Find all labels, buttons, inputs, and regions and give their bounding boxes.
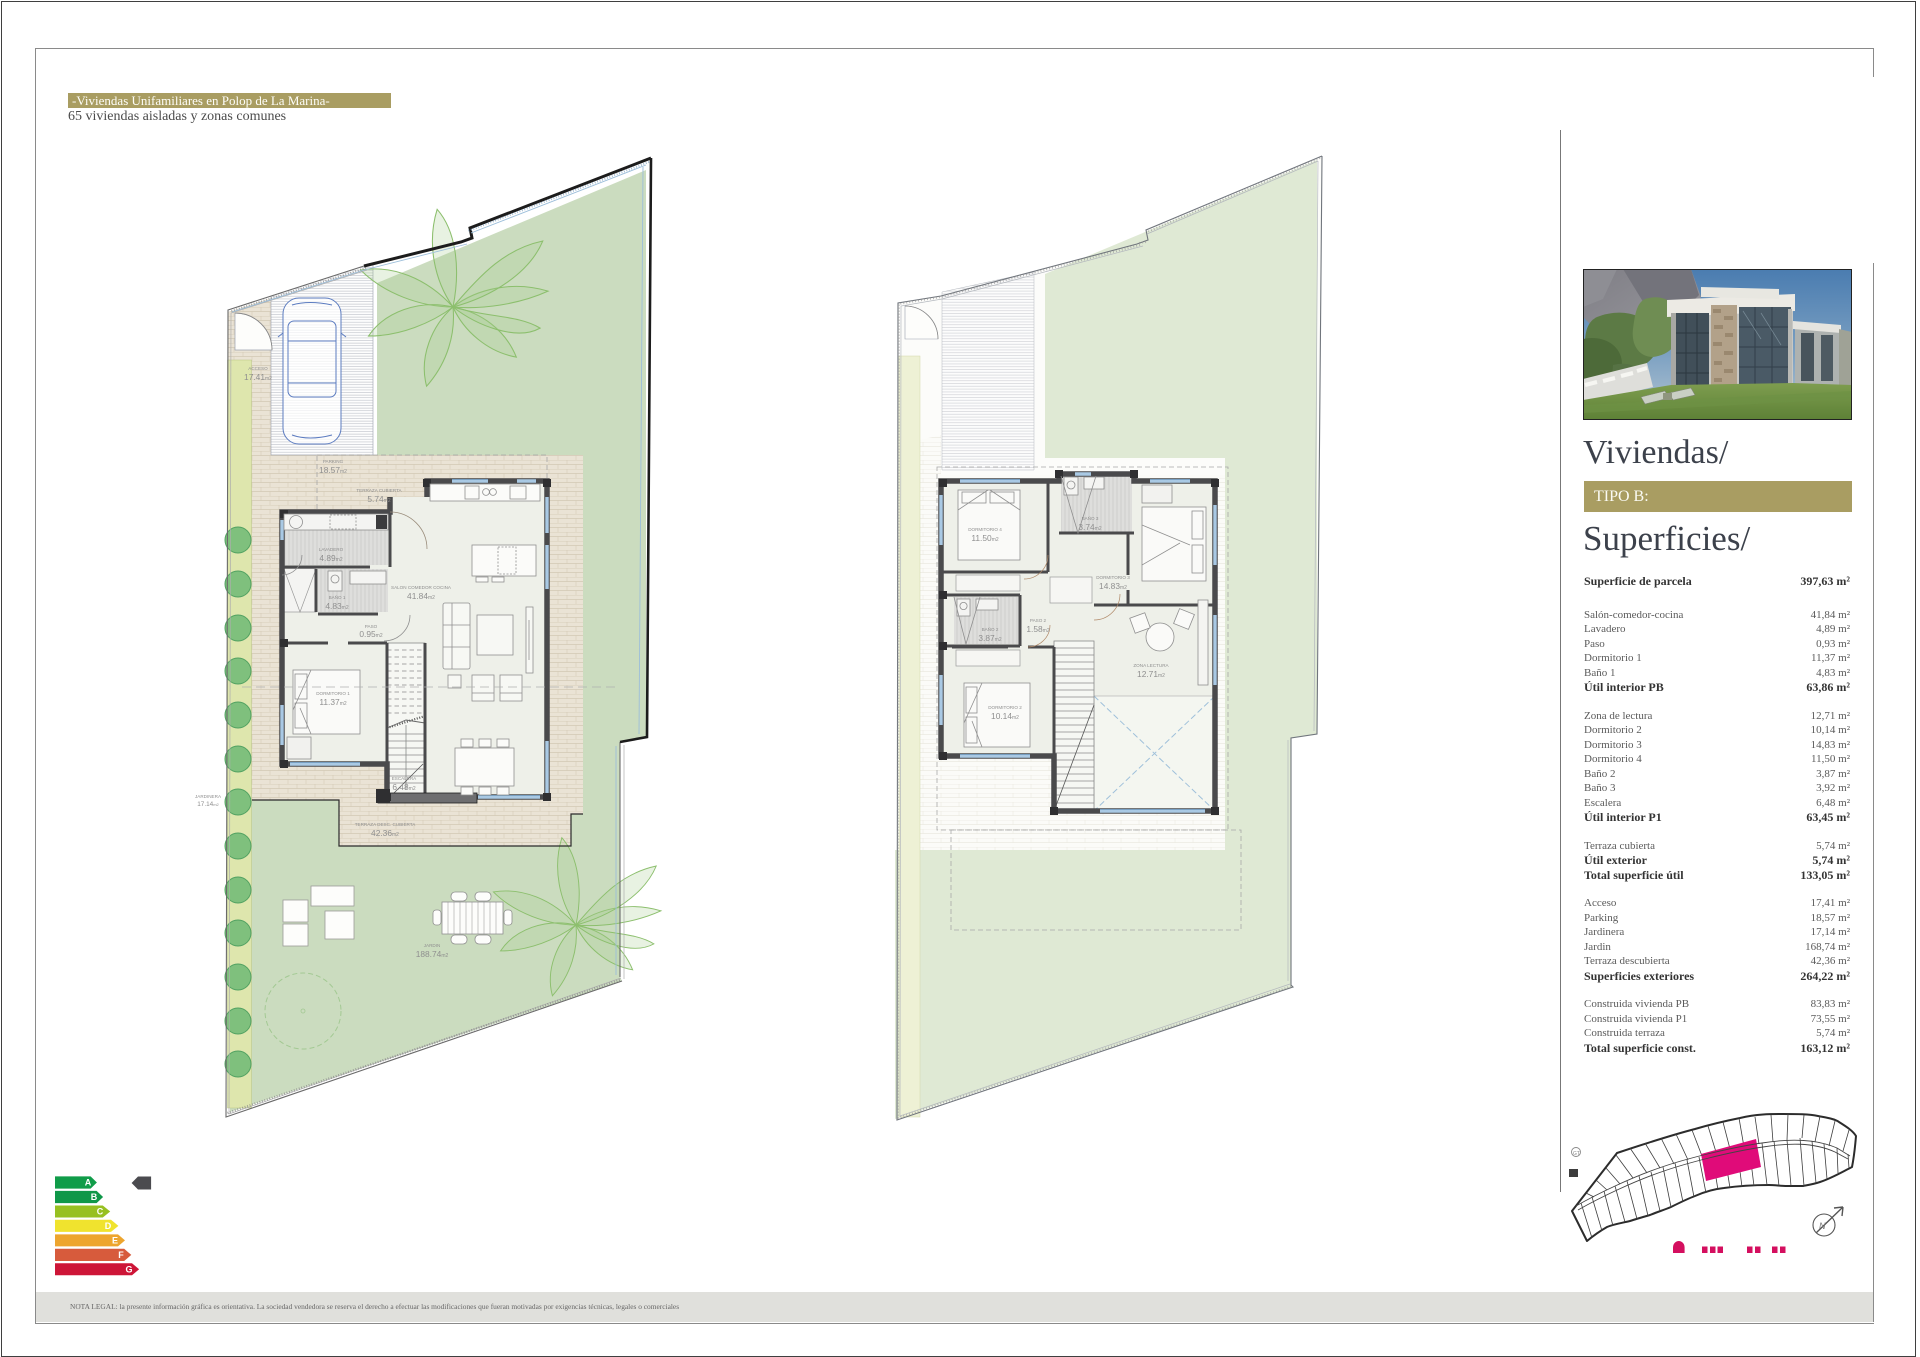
svg-text:DORMITORIO 4: DORMITORIO 4 [968,527,1002,532]
svg-text:E: E [112,1235,118,1245]
svg-text:BAÑO 1: BAÑO 1 [329,594,346,600]
svg-text:G: G [125,1264,132,1274]
svg-text:BAÑO 2: BAÑO 2 [982,626,999,632]
svg-text:N: N [1819,1221,1826,1231]
svg-text:DORMITORIO 1: DORMITORIO 1 [316,691,350,696]
svg-text:LAVADERO: LAVADERO [319,547,344,552]
svg-text:BAÑO 3: BAÑO 3 [1082,515,1099,521]
svg-text:PARKING: PARKING [323,459,344,464]
svg-text:GT: GT [1573,1151,1580,1157]
svg-text:F: F [118,1250,124,1260]
svg-text:DORMITORIO 2: DORMITORIO 2 [988,705,1022,710]
svg-text:ACCESO: ACCESO [248,366,268,371]
svg-text:A: A [85,1178,92,1188]
svg-text:B: B [91,1192,98,1202]
svg-text:PASO 2: PASO 2 [1030,618,1047,623]
svg-text:TERRAZA DESC. CUBIERTA: TERRAZA DESC. CUBIERTA [355,822,417,827]
svg-text:JARDINERA: JARDINERA [195,794,222,799]
svg-text:17.14m2: 17.14m2 [197,801,219,808]
svg-text:ZONA LECTURA: ZONA LECTURA [1133,663,1169,668]
svg-text:DORMITORIO 3: DORMITORIO 3 [1096,575,1130,580]
svg-text:JARDIN: JARDIN [424,943,441,948]
svg-text:SALON COMEDOR COCINA: SALON COMEDOR COCINA [391,585,452,590]
svg-text:TERRAZA CUBIERTA: TERRAZA CUBIERTA [356,488,402,493]
svg-text:ESCALERA: ESCALERA [392,776,417,781]
svg-text:D: D [105,1221,112,1231]
svg-text:C: C [97,1207,104,1217]
